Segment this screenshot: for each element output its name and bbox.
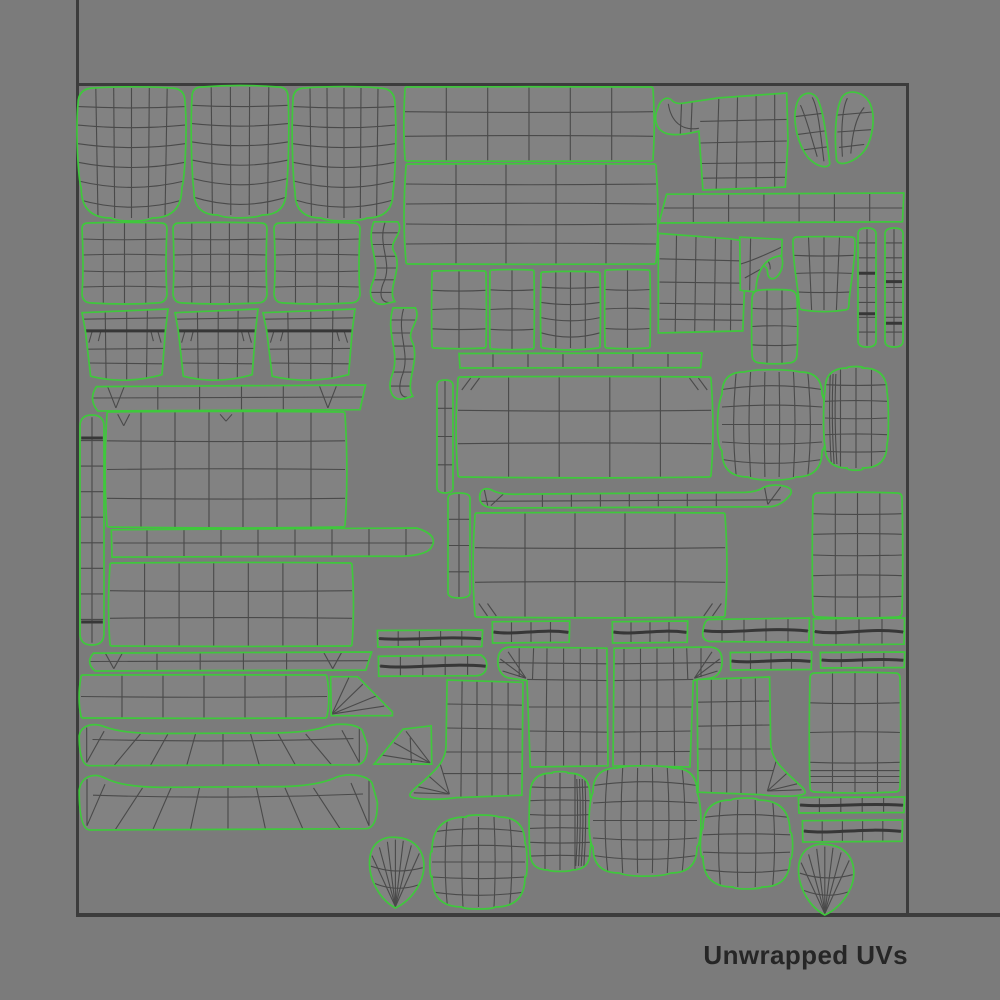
- uv-island-barrel-b: [589, 766, 701, 876]
- uv-island-center-rect-b: [473, 512, 727, 618]
- uv-island-side-panel-small: [793, 237, 855, 312]
- uv-island-arm-front-c: [263, 309, 355, 380]
- uv-island-s-strip-b: [385, 308, 422, 399]
- uv-island-wedge-a: [331, 677, 393, 716]
- uv-island-seat-cushion-b: [191, 86, 289, 218]
- uv-island-back-panel-top: [404, 87, 654, 161]
- uv-island-s-strip-a: [365, 222, 405, 304]
- uv-island-pipe-bar-f: [813, 618, 904, 645]
- uv-island-back-pillow-c: [274, 222, 360, 304]
- uv-island-blob-tall-right: [824, 367, 889, 471]
- uv-island-barrel-a: [718, 370, 827, 480]
- uv-island-blob-b: [700, 798, 792, 889]
- uv-island-fan-rail: [480, 485, 792, 508]
- uv-island-back-pillow-a: [82, 222, 167, 304]
- uv-island-frame-rect-b: [109, 562, 354, 646]
- uv-island-seat-cushion-a: [77, 87, 186, 221]
- uv-island-wedge-b: [374, 726, 432, 764]
- uv-island-small-rect-a: [432, 271, 487, 349]
- uv-island-pipe-bar-a: [377, 630, 482, 647]
- uv-island-blob-a: [430, 815, 527, 909]
- uv-island-v-strip-a: [437, 380, 453, 493]
- uv-island-boot-right: [697, 677, 805, 796]
- uv-island-thin-rail: [459, 353, 702, 368]
- uv-island-wing-pair: [795, 92, 873, 167]
- uv-island-teardrop-b: [799, 844, 854, 915]
- uv-island-corner-square: [752, 289, 798, 363]
- uv-island-small-rect-b: [490, 270, 535, 350]
- uv-island-back-panel-mid: [404, 164, 658, 265]
- uv-island-ladder-strip-a: [858, 228, 876, 347]
- uv-island-right-rect-b: [809, 672, 900, 793]
- uv-island-arm-front-a: [82, 309, 168, 380]
- uv-island-skirt-notch-bar: [88, 652, 372, 671]
- uv-island-pipe-bar-g: [730, 652, 811, 670]
- uv-island-pipe-bar-i: [798, 797, 904, 813]
- uv-island-taper-rail: [111, 528, 439, 557]
- uv-island-front-rail: [79, 675, 329, 719]
- uv-island-side-ladder: [80, 415, 104, 645]
- uv-island-pipe-bar-e: [701, 618, 809, 642]
- caption-unwrapped-uvs: Unwrapped UVs: [703, 940, 908, 971]
- uv-canvas: [0, 0, 1000, 1000]
- uv-island-pipe-bar-j: [802, 820, 902, 842]
- uv-island-right-rect-a: [812, 492, 902, 618]
- uv-island-pipe-bar-c: [492, 621, 569, 643]
- uv-island-ladder-strip-b: [885, 228, 903, 347]
- uv-island-base-notch-bar: [91, 385, 366, 411]
- uv-island-arm-front-b: [175, 309, 258, 380]
- uv-island-small-rect-c: [541, 271, 601, 350]
- uv-island-v-strip-b: [448, 493, 470, 598]
- uv-island-teardrop-a: [369, 837, 423, 908]
- uv-island-skirt-band-b: [79, 775, 377, 830]
- uv-island-skirt-band-a: [79, 724, 367, 765]
- uv-layout-view: Unwrapped UVs: [0, 0, 1000, 1000]
- uv-island-pipe-bar-h: [820, 652, 904, 668]
- uv-island-rail-bar: [659, 193, 904, 223]
- uv-island-round-tall: [529, 772, 591, 872]
- uv-island-center-rect-a: [456, 376, 713, 478]
- uv-island-pipe-bar-d: [612, 621, 687, 643]
- uv-island-seat-cushion-c: [292, 87, 396, 221]
- uv-island-small-rect-d: [605, 270, 651, 349]
- uv-island-arm-hook-left: [656, 93, 788, 190]
- uv-island-pipe-bar-b: [378, 655, 489, 676]
- uv-island-frame-rect-a: [105, 411, 347, 528]
- uv-island-back-pillow-b: [173, 222, 267, 304]
